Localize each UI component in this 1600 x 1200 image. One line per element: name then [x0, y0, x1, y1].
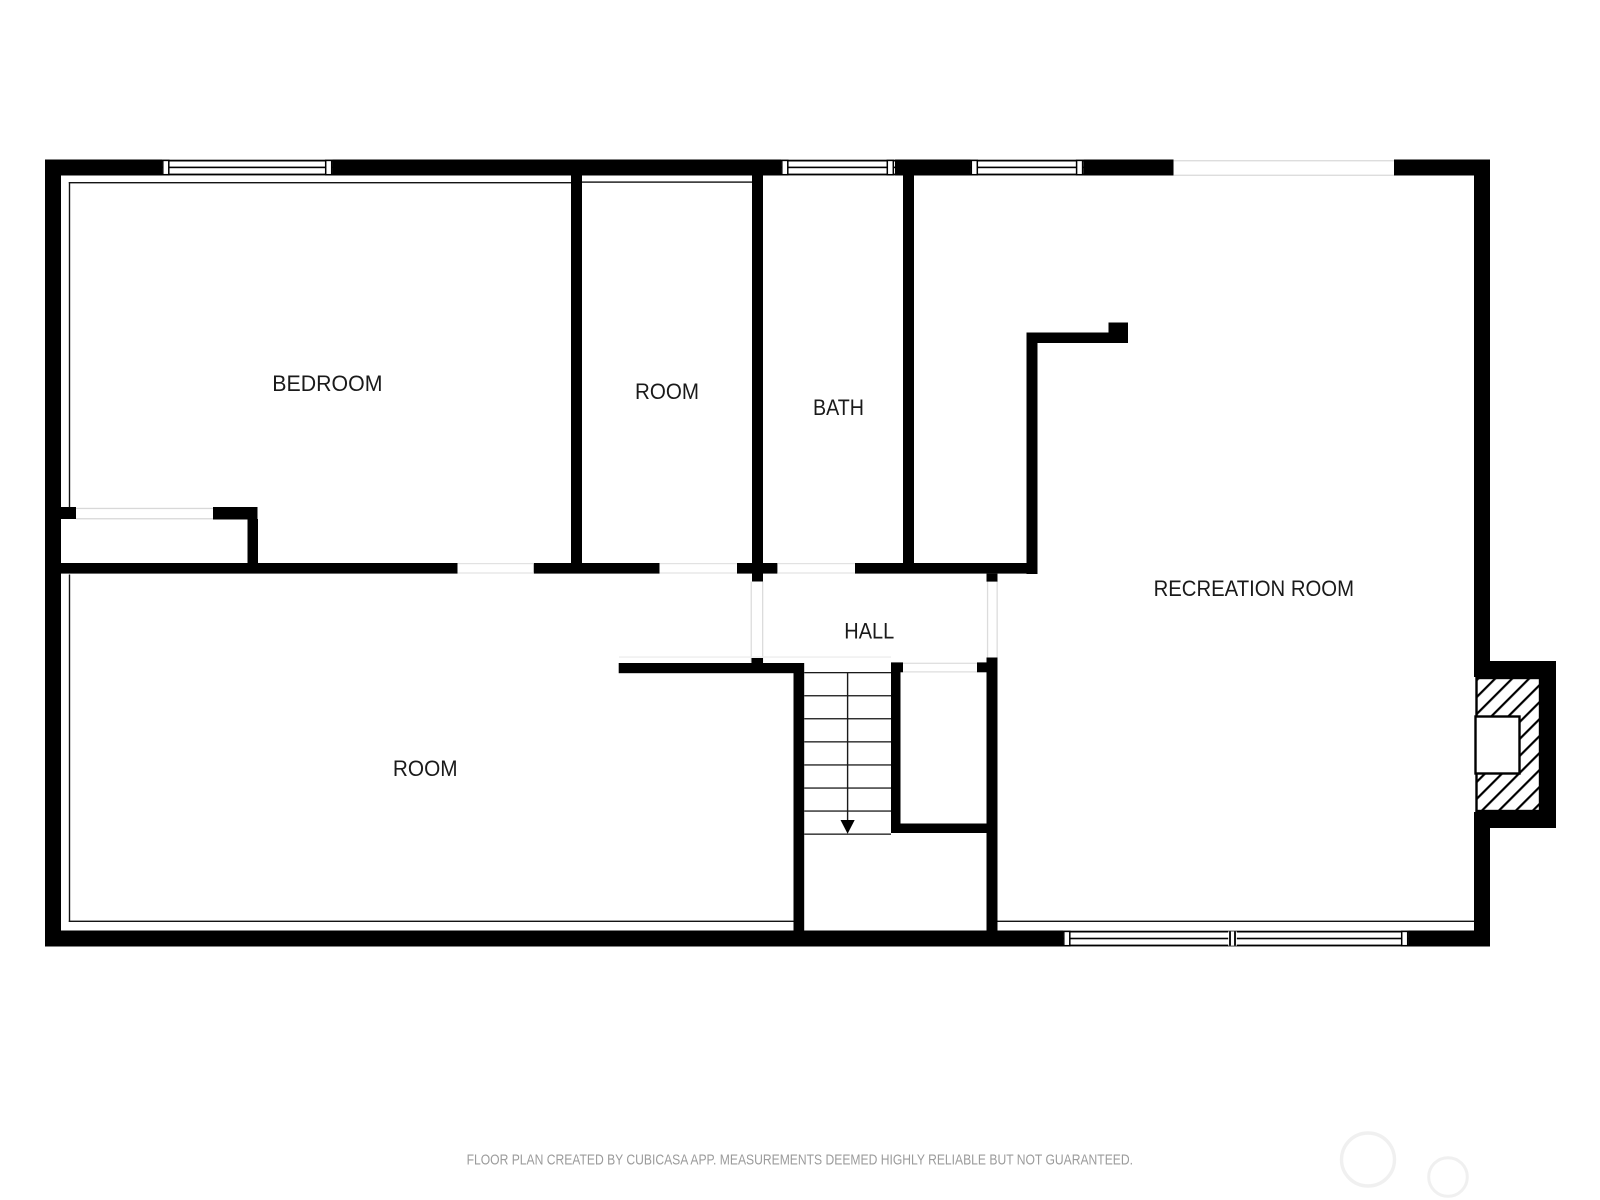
svg-text:RECREATION ROOM: RECREATION ROOM — [1154, 576, 1354, 601]
svg-text:ROOM: ROOM — [635, 379, 699, 404]
svg-text:BEDROOM: BEDROOM — [272, 371, 382, 396]
svg-text:FLOOR PLAN CREATED BY CUBICASA: FLOOR PLAN CREATED BY CUBICASA APP. MEAS… — [467, 1153, 1133, 1169]
svg-text:HALL: HALL — [844, 619, 894, 644]
svg-text:BATH: BATH — [813, 395, 864, 420]
svg-text:ROOM: ROOM — [393, 756, 458, 781]
